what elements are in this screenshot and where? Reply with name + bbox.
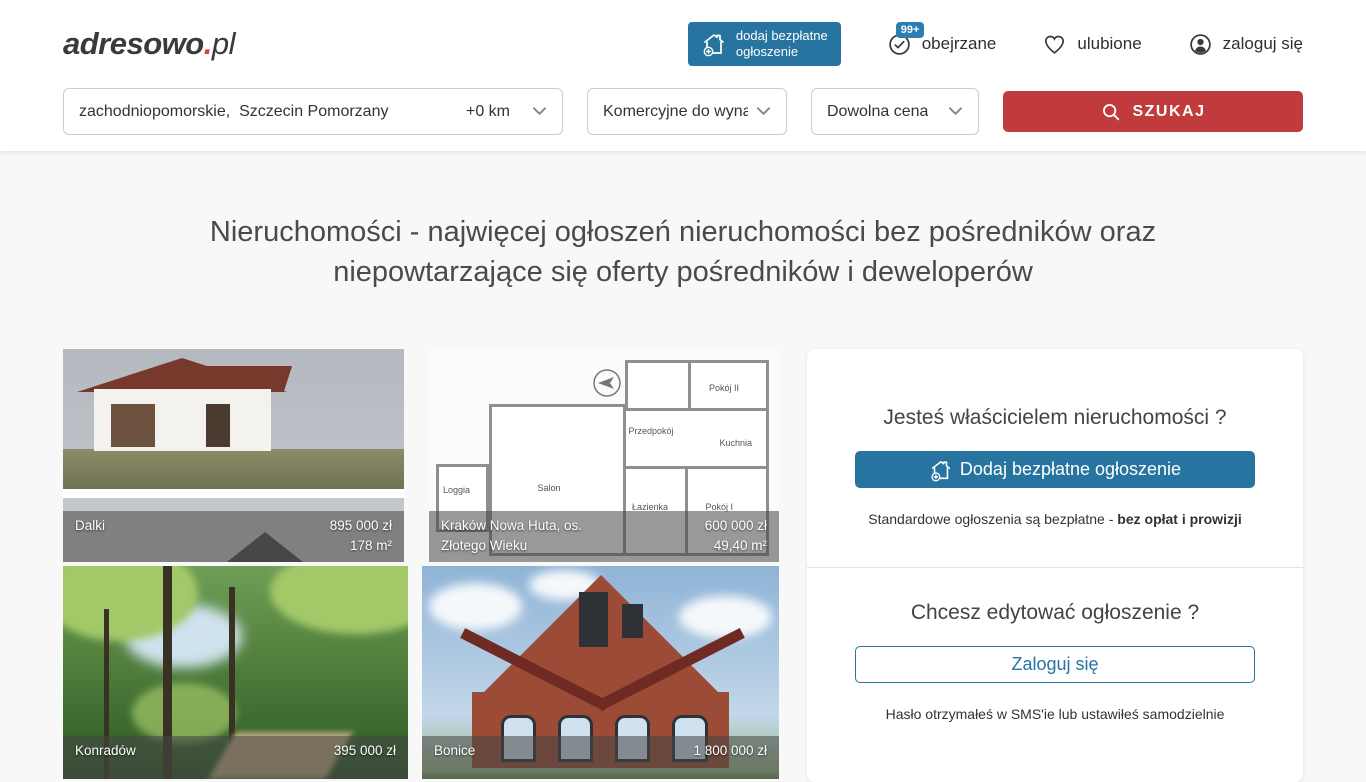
header-actions: dodaj bezpłatne ogłoszenie 99+ xyxy=(688,22,1303,66)
owner-note: Standardowe ogłoszenia są bezpłatne - be… xyxy=(855,511,1255,527)
listing-grid: Dalki 895 000 zł 178 m² xyxy=(63,349,779,779)
page-title: Nieruchomości - najwięcej ogłoszeń nieru… xyxy=(178,212,1188,292)
category-value: Komercyjne do wynaję xyxy=(603,103,748,121)
floorplan-room-label: Pokój II xyxy=(709,383,739,393)
edit-section-title: Chcesz edytować ogłoszenie ? xyxy=(855,601,1255,625)
listing-name: Kraków Nowa Huta, os. Złotego Wieku xyxy=(441,516,620,556)
heart-icon xyxy=(1042,32,1067,57)
listing-price: 895 000 zł xyxy=(330,518,392,533)
category-select[interactable]: Komercyjne do wynaję xyxy=(587,88,787,135)
compass-icon xyxy=(590,366,624,400)
listing-name: Konradów xyxy=(75,741,136,761)
chevron-down-icon xyxy=(756,103,771,121)
listing-caption: Kraków Nowa Huta, os. Złotego Wieku 600 … xyxy=(429,511,779,562)
search-button[interactable]: SZUKAJ xyxy=(1003,91,1303,132)
favorites-label: ulubione xyxy=(1077,34,1141,54)
sidebar-card: Jesteś właścicielem nieruchomości ? Doda… xyxy=(807,349,1303,782)
owner-section: Jesteś właścicielem nieruchomości ? Doda… xyxy=(807,349,1303,567)
price-select[interactable]: Dowolna cena xyxy=(811,88,979,135)
user-icon xyxy=(1188,32,1213,57)
add-listing-button[interactable]: dodaj bezpłatne ogłoszenie xyxy=(688,22,841,66)
search-icon xyxy=(1100,101,1122,123)
listing-tile[interactable]: Bonice 1 800 000 zł xyxy=(422,566,779,779)
listing-tile[interactable]: Dalki 895 000 zł 178 m² xyxy=(63,349,404,562)
site-header: adresowo.pl dodaj bezpłatne ogłoszenie xyxy=(0,0,1366,151)
listing-name: Dalki xyxy=(75,516,105,536)
login-label: zaloguj się xyxy=(1223,34,1303,54)
price-value: Dowolna cena xyxy=(827,103,928,121)
listing-tile[interactable]: Konradów 395 000 zł xyxy=(63,566,408,779)
house-plus-icon xyxy=(701,31,727,57)
listing-price: 395 000 zł xyxy=(334,743,396,758)
login-cta-button[interactable]: Zaloguj się xyxy=(855,646,1255,683)
logo[interactable]: adresowo.pl xyxy=(63,26,235,62)
logo-tld-text: pl xyxy=(212,26,235,61)
edit-section: Chcesz edytować ogłoszenie ? Zaloguj się… xyxy=(807,568,1303,782)
floorplan-room-label: Kuchnia xyxy=(720,438,753,448)
listing-caption: Bonice 1 800 000 zł xyxy=(422,736,779,779)
listing-area: 178 m² xyxy=(350,538,392,553)
radius-select[interactable]: +0 km xyxy=(466,103,510,121)
viewed-count-badge: 99+ xyxy=(896,22,925,38)
chevron-down-icon xyxy=(532,103,547,121)
listing-area: 49,40 m² xyxy=(714,538,767,553)
owner-section-title: Jesteś właścicielem nieruchomości ? xyxy=(855,406,1255,430)
viewed-link[interactable]: 99+ obejrzane xyxy=(887,32,997,57)
edit-note: Hasło otrzymałeś w SMS'ie lub ustawiłeś … xyxy=(855,706,1255,722)
floorplan-room-label: Przedpokój xyxy=(629,426,674,436)
viewed-label: obejrzane xyxy=(922,34,997,54)
main-content: Nieruchomości - najwięcej ogłoszeń nieru… xyxy=(0,212,1366,782)
login-link[interactable]: zaloguj się xyxy=(1188,32,1303,57)
listing-price: 600 000 zł xyxy=(705,518,767,533)
logo-main-text: adresowo xyxy=(63,26,204,61)
add-listing-label: dodaj bezpłatne ogłoszenie xyxy=(736,28,828,60)
floorplan-room-label: Salon xyxy=(538,483,561,493)
location-input[interactable] xyxy=(79,103,466,121)
listing-caption: Konradów 395 000 zł xyxy=(63,736,408,779)
add-listing-cta-button[interactable]: Dodaj bezpłatne ogłoszenie xyxy=(855,451,1255,488)
listing-tile[interactable]: Pokój II Przedpokój Kuchnia Loggia Salon… xyxy=(429,349,779,562)
logo-dot: . xyxy=(204,26,212,61)
house-plus-icon xyxy=(929,458,953,482)
location-field[interactable]: +0 km xyxy=(63,88,563,135)
search-button-label: SZUKAJ xyxy=(1132,103,1205,121)
favorites-link[interactable]: ulubione xyxy=(1042,32,1141,57)
listing-caption: Dalki 895 000 zł 178 m² xyxy=(63,511,404,562)
add-listing-cta-label: Dodaj bezpłatne ogłoszenie xyxy=(960,459,1181,480)
listing-price: 1 800 000 zł xyxy=(693,743,767,758)
chevron-down-icon xyxy=(948,103,963,121)
floorplan-room-label: Loggia xyxy=(443,485,470,495)
listing-name: Bonice xyxy=(434,741,475,761)
search-bar: +0 km Komercyjne do wynaję Dowolna cena xyxy=(63,88,1303,151)
